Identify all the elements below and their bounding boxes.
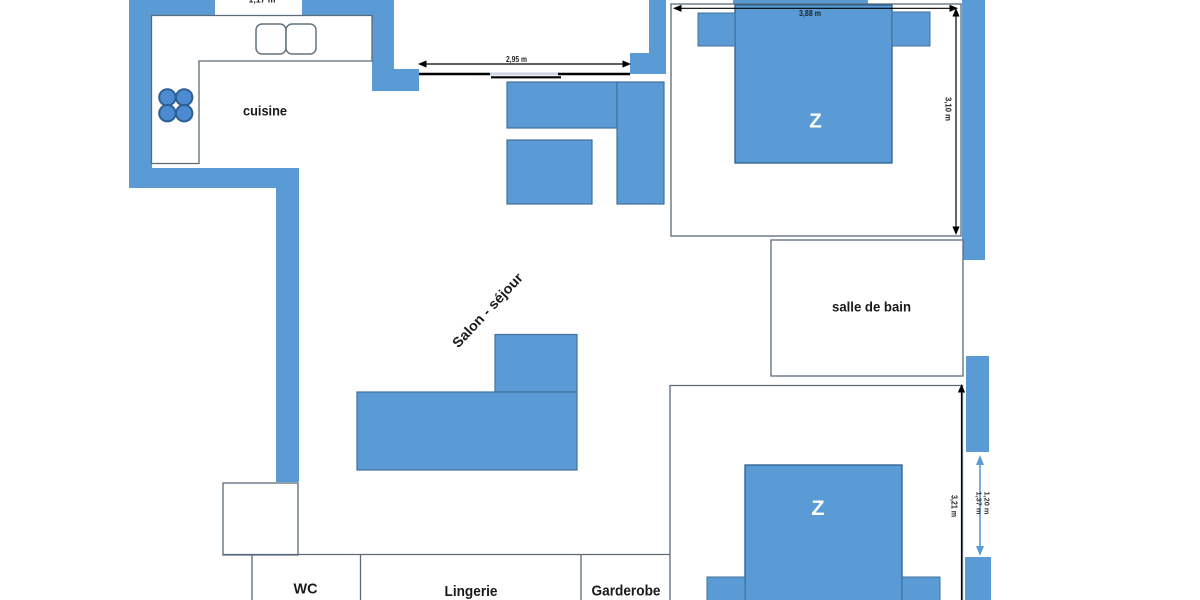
svg-text:Lingerie: Lingerie [445, 583, 498, 600]
svg-text:Z: Z [811, 496, 824, 520]
svg-text:1,37 m: 1,37 m [975, 492, 984, 515]
svg-text:Z: Z [809, 110, 822, 133]
svg-text:Garderobe: Garderobe [592, 583, 661, 600]
svg-text:2,95 m: 2,95 m [506, 55, 527, 64]
svg-text:1,20 m: 1,20 m [983, 492, 992, 515]
svg-text:3,21 m: 3,21 m [950, 495, 959, 517]
svg-text:cuisine: cuisine [243, 103, 287, 119]
svg-text:1,17 m: 1,17 m [249, 0, 276, 5]
svg-text:salle de bain: salle de bain [832, 299, 911, 315]
svg-text:3,10 m: 3,10 m [944, 97, 953, 121]
svg-text:WC: WC [294, 581, 318, 598]
svg-text:3,88 m: 3,88 m [799, 9, 821, 18]
